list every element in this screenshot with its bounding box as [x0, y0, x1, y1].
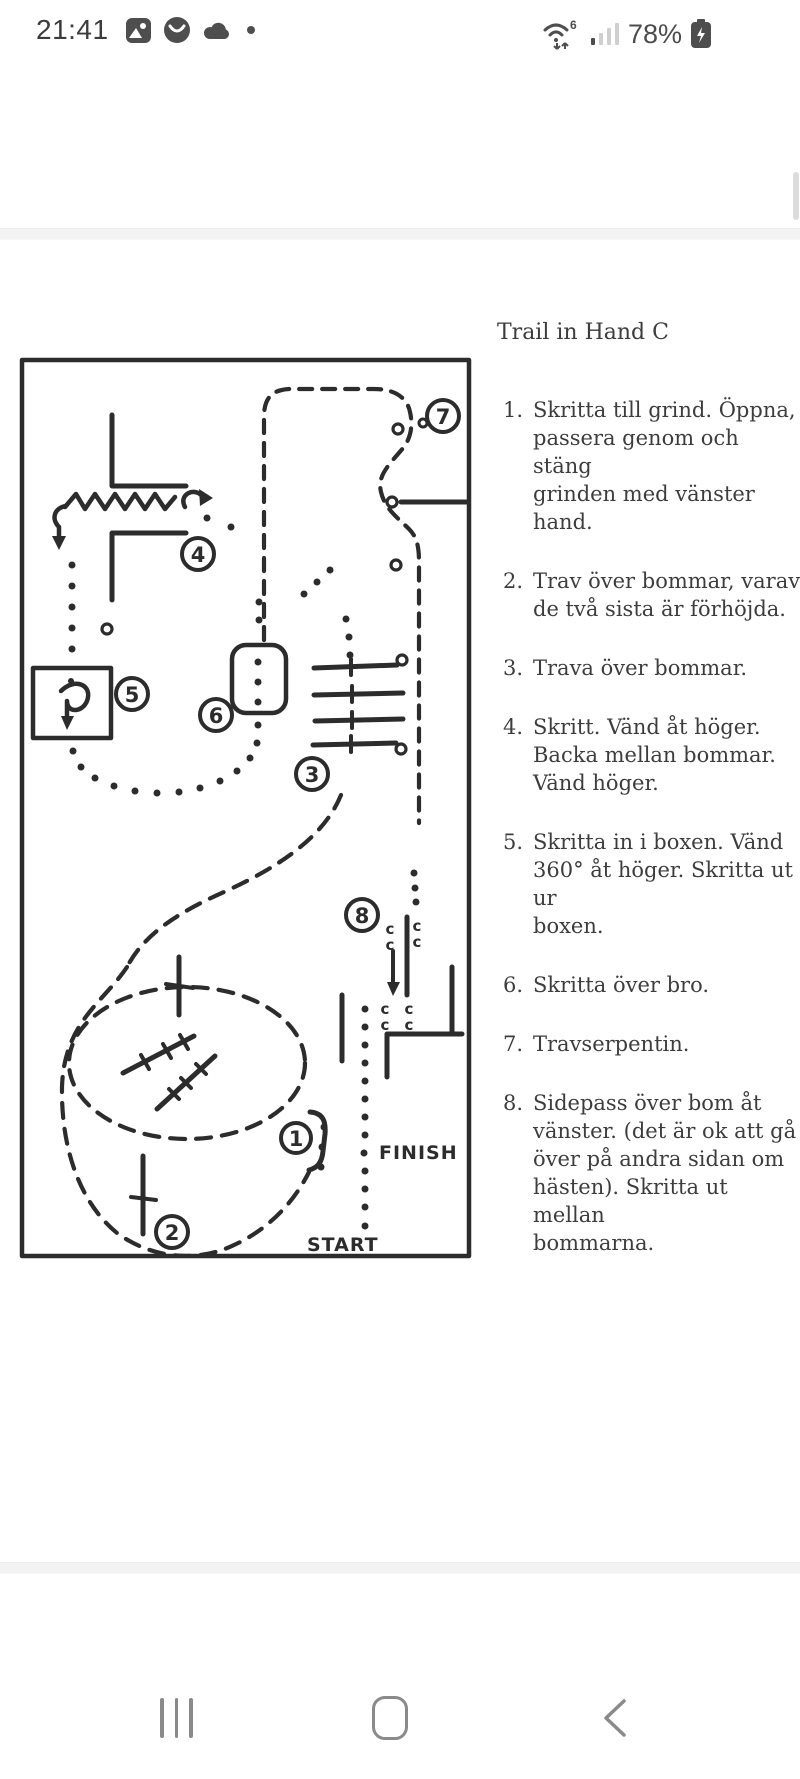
- instruction-item: 2.Trav över bommar, varavde två sista är…: [503, 567, 800, 623]
- station-marker-2: 2: [156, 1216, 188, 1248]
- pole-letter-labels: c c c c c c c c: [381, 917, 422, 1034]
- cone-marker: [393, 424, 403, 434]
- station-marker-1: 1: [281, 1123, 311, 1153]
- instruction-text: Travserpentin.: [533, 1030, 800, 1058]
- wifi-icon: 6: [540, 16, 582, 52]
- obstacle-sidepass: [342, 917, 462, 1077]
- svg-text:c: c: [381, 1016, 390, 1034]
- instruction-item: 1.Skritta till grind. Öppna,passera geno…: [503, 396, 800, 536]
- page-title: Trail in Hand C: [497, 320, 669, 345]
- svg-text:2: 2: [165, 1221, 180, 1245]
- page-separator-top: [0, 228, 800, 240]
- instruction-list: 1.Skritta till grind. Öppna,passera geno…: [503, 396, 800, 1288]
- instruction-item: 6.Skritta över bro.: [503, 971, 800, 999]
- station-marker-7: 7: [427, 400, 459, 432]
- instruction-item: 4.Skritt. Vänd åt höger.Backa mellan bom…: [503, 713, 800, 797]
- instruction-number: 5.: [503, 828, 533, 940]
- scrollbar-thumb[interactable]: [793, 172, 799, 220]
- instruction-number: 1.: [503, 396, 533, 536]
- finish-label: FINISH: [379, 1142, 458, 1164]
- ticked-ground-poles: [123, 957, 215, 1234]
- instruction-text: Skritta till grind. Öppna,passera genom …: [533, 396, 800, 536]
- recents-icon[interactable]: [160, 1698, 193, 1738]
- cone-marker: [387, 497, 397, 507]
- station-marker-3: 3: [296, 758, 328, 790]
- station-marker-8: 8: [346, 899, 378, 931]
- svg-text:7: 7: [436, 405, 451, 429]
- svg-text:4: 4: [191, 543, 206, 567]
- cloud-icon: [202, 18, 232, 42]
- instruction-number: 4.: [503, 713, 533, 797]
- instruction-text: Skritta in i boxen. Vänd360° åt höger. S…: [533, 828, 800, 940]
- home-icon[interactable]: [372, 1696, 408, 1740]
- instruction-text: Trav över bommar, varavde två sista är f…: [533, 567, 800, 623]
- start-label: START: [307, 1234, 379, 1256]
- instruction-number: 7.: [503, 1030, 533, 1058]
- app-circle-icon: [163, 16, 191, 44]
- phone-screen: { "status_bar": { "time": "21:41", "batt…: [0, 0, 800, 1779]
- station-marker-4: 4: [182, 538, 214, 570]
- instruction-item: 7.Travserpentin.: [503, 1030, 800, 1058]
- battery-charging-icon: [690, 19, 712, 49]
- svg-text:c: c: [413, 933, 422, 951]
- station-marker-6: 6: [200, 699, 232, 731]
- svg-text:6: 6: [570, 18, 577, 32]
- walk-path-dots: [68, 515, 420, 1230]
- instruction-text: Trava över bommar.: [533, 654, 800, 682]
- obstacle-trot-poles: [313, 655, 407, 754]
- arena-border: [22, 360, 469, 1256]
- station-marker-5: 5: [116, 678, 148, 710]
- clock: 21:41: [36, 14, 109, 46]
- down-arrow-icon: [387, 982, 400, 996]
- svg-text:8: 8: [355, 904, 370, 928]
- svg-text:1: 1: [289, 1127, 304, 1151]
- svg-text:c: c: [386, 936, 395, 954]
- instruction-item: 8.Sidepass över bom åtvänster. (det är o…: [503, 1089, 800, 1257]
- instruction-text: Skritt. Vänd åt höger.Backa mellan bomma…: [533, 713, 800, 797]
- turn-arrow-icon: [61, 716, 74, 730]
- obstacle-backup-corner: [52, 415, 213, 634]
- back-icon[interactable]: [598, 1698, 632, 1738]
- instruction-number: 2.: [503, 567, 533, 623]
- instruction-item: 5.Skritta in i boxen. Vänd360° åt höger.…: [503, 828, 800, 940]
- down-arrow-icon: [52, 536, 66, 550]
- instruction-number: 3.: [503, 654, 533, 682]
- status-bar: 21:41 6: [0, 0, 800, 62]
- svg-text:5: 5: [125, 683, 140, 707]
- instruction-text: Sidepass över bom åtvänster. (det är ok …: [533, 1089, 800, 1257]
- svg-text:6: 6: [209, 704, 224, 728]
- trail-course-diagram: c c c c c c c c 1 2 3 4 5 6 7: [19, 357, 472, 1259]
- signal-bars-icon: [590, 20, 620, 48]
- instruction-text: Skritta över bro.: [533, 971, 800, 999]
- right-arrow-icon: [199, 489, 213, 506]
- svg-text:c: c: [405, 1016, 414, 1034]
- instruction-item: 3.Trava över bommar.: [503, 654, 800, 682]
- svg-text:3: 3: [305, 763, 320, 787]
- trot-circle-path: [62, 795, 341, 1256]
- instruction-number: 8.: [503, 1089, 533, 1257]
- cone-marker: [391, 560, 401, 570]
- instruction-number: 6.: [503, 971, 533, 999]
- navigation-bar: [0, 1690, 800, 1760]
- notification-dot: [247, 26, 255, 34]
- gallery-icon: [125, 17, 152, 44]
- battery-percent: 78%: [628, 19, 682, 50]
- page-separator-bottom: [0, 1562, 800, 1574]
- trot-serpentine-path: [264, 389, 466, 823]
